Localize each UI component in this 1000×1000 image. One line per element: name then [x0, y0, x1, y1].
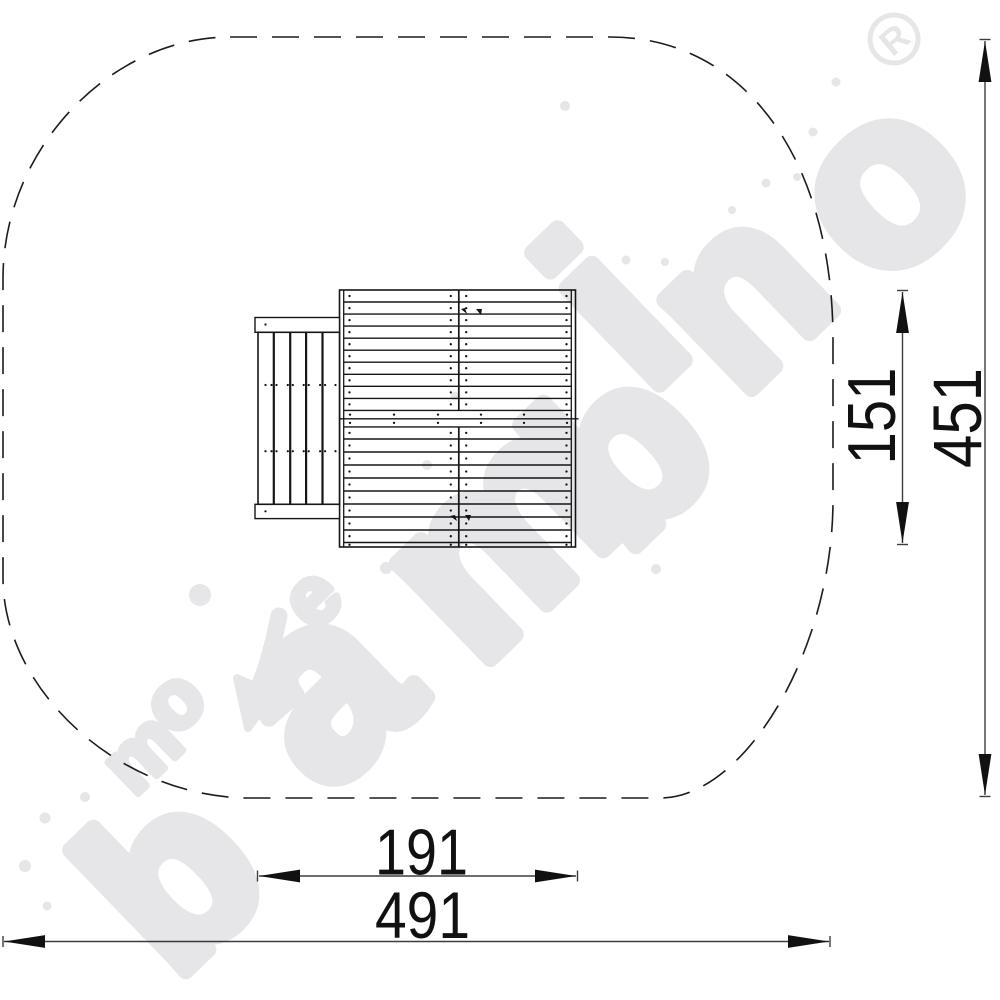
svg-text:451: 451	[919, 368, 996, 468]
svg-text:151: 151	[834, 368, 910, 465]
svg-text:491: 491	[375, 878, 470, 952]
